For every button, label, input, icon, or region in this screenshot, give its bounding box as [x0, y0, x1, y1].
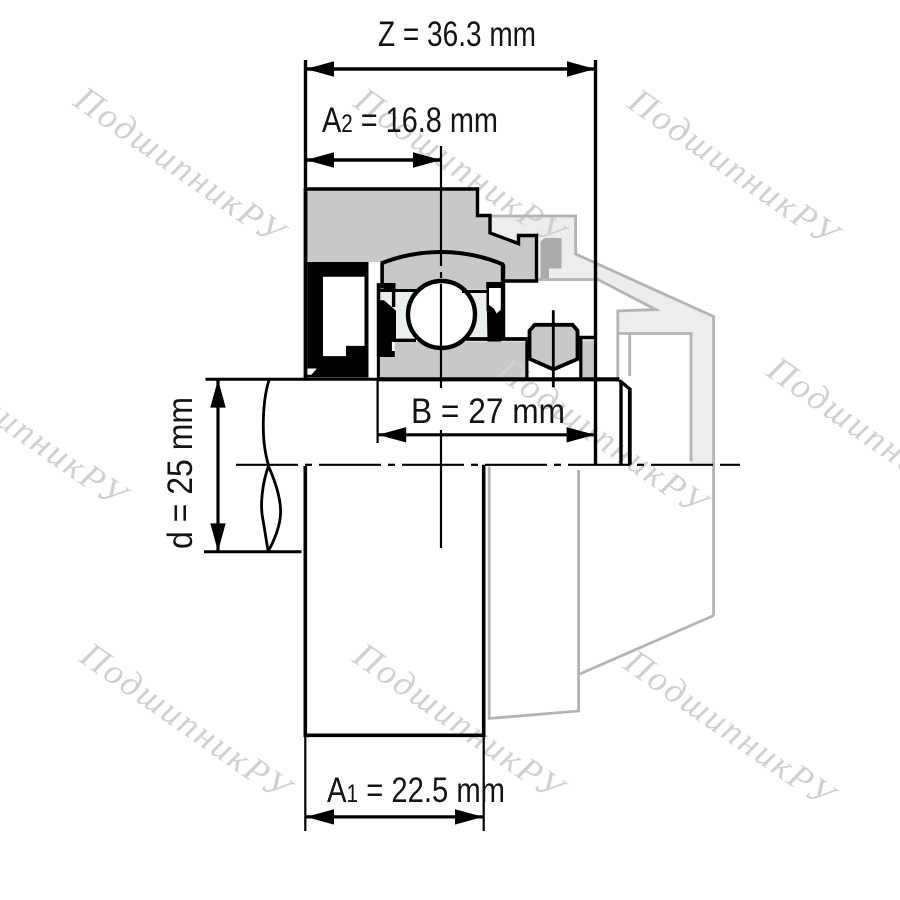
svg-text:Z = 36.3 mm: Z = 36.3 mm — [378, 15, 536, 54]
svg-text:B = 27 mm: B = 27 mm — [411, 392, 565, 431]
svg-text:d = 25 mm: d = 25 mm — [161, 397, 200, 549]
